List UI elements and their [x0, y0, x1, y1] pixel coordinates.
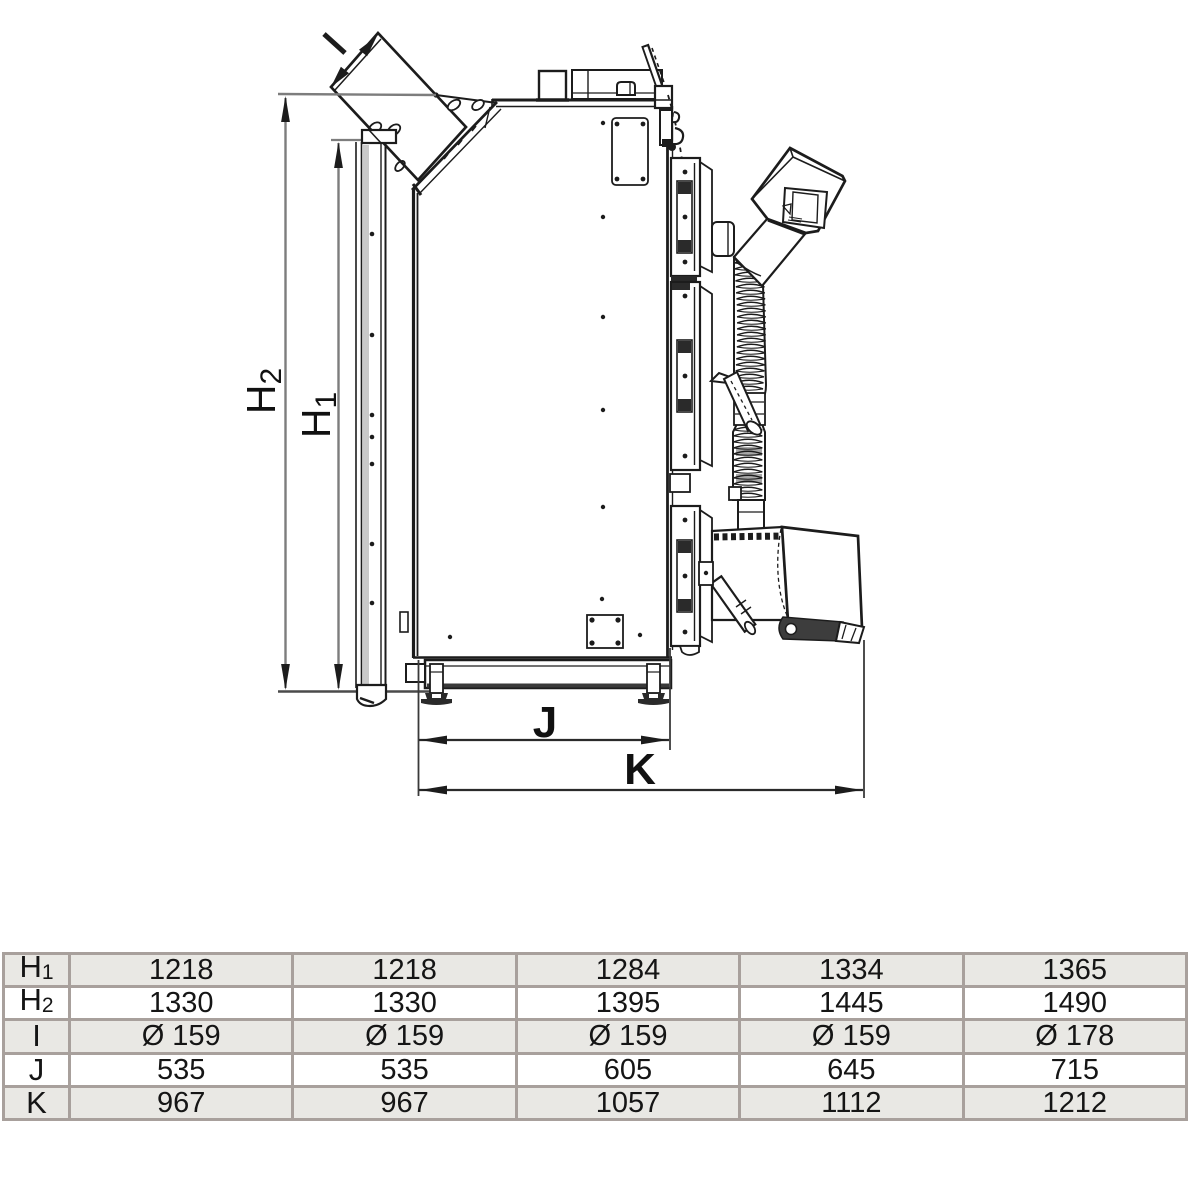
svg-text:J: J	[533, 698, 557, 747]
svg-text:K: K	[624, 745, 656, 794]
svg-text:H1: H1	[293, 392, 343, 438]
svg-text:H2: H2	[238, 368, 288, 414]
